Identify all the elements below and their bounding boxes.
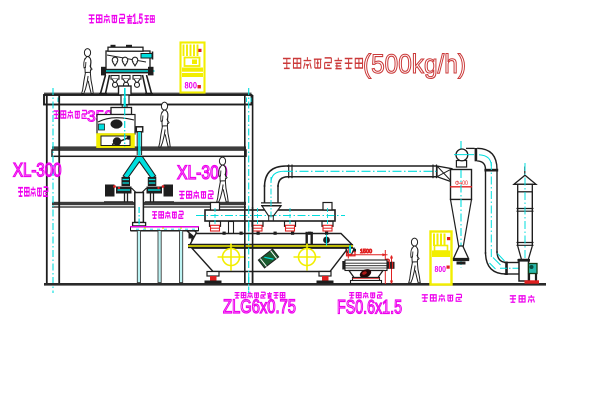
- svg-text:(500kg/h): (500kg/h): [363, 49, 466, 79]
- svg-text:800: 800: [435, 264, 447, 274]
- svg-text:1500: 1500: [360, 249, 372, 255]
- svg-text:Φ400: Φ400: [455, 181, 469, 187]
- svg-text:1.5: 1.5: [133, 12, 144, 27]
- svg-text:FS0.6x1.5: FS0.6x1.5: [337, 298, 402, 319]
- svg-text:ZLG6x0.75: ZLG6x0.75: [223, 297, 296, 318]
- svg-text:800: 800: [185, 81, 198, 92]
- svg-text:XL-300: XL-300: [13, 161, 62, 182]
